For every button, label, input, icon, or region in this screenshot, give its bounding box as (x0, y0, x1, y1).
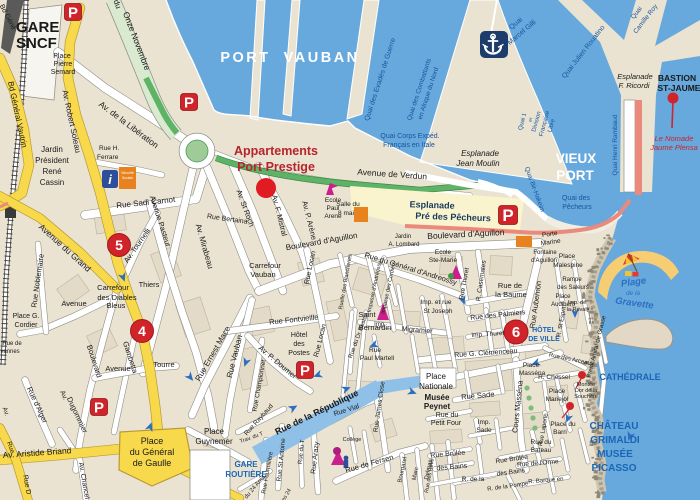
svg-text:Imp. et rue: Imp. et rue (420, 299, 451, 306)
svg-text:Esplanade: Esplanade (617, 72, 652, 81)
svg-text:Président: Président (35, 156, 70, 165)
svg-text:6: 6 (512, 324, 520, 341)
svg-text:BASTION: BASTION (658, 73, 696, 83)
svg-text:Sade: Sade (476, 427, 492, 434)
svg-text:Cassin: Cassin (40, 178, 64, 187)
svg-text:Musée: Musée (425, 393, 450, 402)
svg-text:5: 5 (115, 237, 123, 253)
svg-text:Quai Henri Rambaud: Quai Henri Rambaud (612, 114, 619, 175)
svg-text:Malespine: Malespine (553, 262, 583, 269)
svg-text:Place: Place (204, 427, 225, 436)
svg-text:GARE: GARE (234, 460, 258, 469)
svg-text:Imp.: Imp. (478, 419, 491, 426)
svg-text:Rue du: Rue du (531, 439, 552, 446)
svg-text:i: i (108, 172, 112, 187)
svg-text:Bleus: Bleus (107, 301, 126, 310)
svg-text:HÔTEL: HÔTEL (532, 325, 556, 334)
svg-text:vannes: vannes (0, 349, 19, 355)
svg-text:Mariejol: Mariejol (546, 396, 569, 403)
svg-text:des: des (293, 341, 305, 348)
svg-text:Rue du: Rue du (436, 412, 459, 419)
svg-text:Esplanade: Esplanade (409, 199, 454, 211)
svg-text:Pierre: Pierre (54, 61, 73, 68)
svg-text:MUSÉE: MUSÉE (597, 447, 633, 460)
svg-text:P: P (68, 4, 78, 21)
svg-text:GARE: GARE (16, 19, 59, 36)
svg-text:Souchère: Souchère (574, 394, 598, 400)
svg-text:CATHÉDRALE: CATHÉDRALE (599, 372, 660, 382)
svg-text:Imp. de: Imp. de (568, 300, 586, 306)
svg-text:Tourre: Tourre (153, 360, 174, 369)
svg-text:Postes: Postes (288, 350, 310, 357)
svg-text:la Revaly: la Revaly (567, 307, 590, 313)
svg-text:Rue de: Rue de (2, 341, 22, 347)
svg-text:PICASSO: PICASSO (591, 463, 636, 474)
svg-text:la Baume: la Baume (495, 290, 527, 299)
svg-text:CHÂTEAU: CHÂTEAU (590, 419, 639, 432)
svg-text:DE VILLE: DE VILLE (528, 336, 560, 343)
svg-text:Guynemer: Guynemer (195, 437, 233, 446)
svg-text:Jardin: Jardin (41, 145, 63, 154)
svg-text:Esplanade: Esplanade (461, 149, 499, 158)
svg-text:Carrefour: Carrefour (97, 283, 129, 292)
svg-text:Place: Place (559, 253, 576, 260)
svg-text:René: René (42, 167, 62, 176)
svg-text:Pêcheurs: Pêcheurs (562, 204, 592, 211)
svg-text:Barri: Barri (553, 429, 567, 436)
svg-text:PORT VAUBAN: PORT VAUBAN (220, 50, 359, 66)
svg-text:Rue: Rue (369, 347, 381, 354)
svg-text:Français en Itale: Français en Itale (383, 142, 435, 149)
svg-text:4: 4 (138, 323, 146, 339)
svg-text:Avenue: Avenue (61, 299, 86, 308)
svg-text:Imp.: Imp. (374, 322, 386, 328)
svg-text:P: P (300, 362, 310, 379)
svg-text:de la: de la (626, 290, 640, 297)
svg-text:Place: Place (549, 388, 566, 395)
svg-text:Place du: Place du (550, 421, 576, 428)
svg-text:Carrefour: Carrefour (249, 261, 281, 270)
svg-text:Thiers: Thiers (139, 280, 160, 289)
svg-text:Collège: Collège (343, 437, 362, 443)
svg-text:P: P (94, 399, 104, 416)
svg-text:Ecole: Ecole (435, 249, 452, 256)
svg-text:du Général: du Général (130, 447, 175, 457)
svg-text:Semard: Semard (51, 69, 76, 76)
svg-text:ST-JAUME: ST-JAUME (658, 83, 700, 93)
svg-text:P: P (502, 206, 513, 225)
svg-text:de Gaulle: de Gaulle (133, 458, 172, 468)
svg-text:Quai Corps Expéd.: Quai Corps Expéd. (380, 133, 439, 140)
svg-text:Paul: Paul (326, 205, 340, 212)
svg-text:Paul Martell: Paul Martell (360, 355, 395, 362)
svg-text:Place: Place (523, 362, 540, 369)
svg-text:SNCF: SNCF (16, 35, 57, 52)
svg-text:Cordier: Cordier (15, 322, 39, 329)
svg-text:Place G.: Place G. (13, 313, 40, 320)
svg-text:Hôtel: Hôtel (291, 332, 308, 339)
svg-text:F. Ricordi: F. Ricordi (618, 81, 649, 90)
svg-text:Ferrare: Ferrare (97, 154, 119, 161)
svg-text:Ste-Marie: Ste-Marie (429, 257, 458, 264)
svg-text:VIEUX: VIEUX (556, 151, 597, 166)
svg-text:Peynet: Peynet (424, 402, 451, 411)
svg-text:Vauban: Vauban (250, 270, 275, 279)
svg-text:R. Chessel: R. Chessel (538, 374, 570, 381)
svg-text:Avenue: Avenue (105, 364, 130, 373)
svg-text:Rampe: Rampe (562, 277, 582, 283)
svg-text:Ecole: Ecole (325, 197, 342, 204)
svg-text:Jardin: Jardin (395, 234, 411, 240)
svg-text:Quai des: Quai des (562, 195, 591, 202)
svg-text:P: P (184, 94, 194, 111)
svg-text:Place: Place (426, 372, 447, 381)
svg-text:Nationale: Nationale (419, 382, 453, 391)
svg-text:Sécurité: Sécurité (121, 171, 134, 175)
svg-text:GRIMALDI: GRIMALDI (590, 435, 640, 446)
svg-text:Bateau: Bateau (531, 447, 552, 454)
svg-text:PORT: PORT (556, 168, 594, 183)
svg-text:R. de la: R. de la (462, 476, 485, 483)
svg-text:Place: Place (53, 53, 71, 60)
svg-text:A. Lombard: A. Lombard (388, 242, 419, 248)
svg-text:Arene: Arene (324, 213, 342, 220)
svg-text:des Saleurs: des Saleurs (557, 285, 589, 291)
svg-text:Port Prestige: Port Prestige (237, 160, 315, 174)
svg-text:Place: Place (141, 436, 164, 446)
svg-text:St Joseph: St Joseph (424, 308, 453, 315)
svg-text:Petit Four: Petit Four (431, 420, 462, 427)
svg-text:Jaume Plensa: Jaume Plensa (649, 143, 698, 152)
svg-text:Sociale: Sociale (122, 176, 133, 180)
svg-text:Appartements: Appartements (234, 144, 318, 158)
svg-text:Le Nomade: Le Nomade (655, 134, 694, 143)
svg-text:Rue de: Rue de (498, 281, 522, 290)
svg-text:Jean Moulin: Jean Moulin (455, 159, 500, 168)
svg-text:Rue H.: Rue H. (99, 145, 119, 152)
svg-text:Fontaine: Fontaine (533, 250, 557, 256)
